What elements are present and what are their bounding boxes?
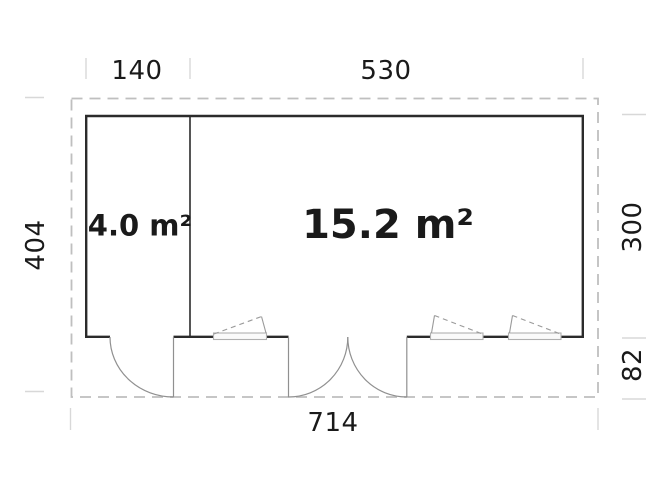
window-frame (509, 333, 562, 340)
window-opening-dashed (435, 316, 483, 335)
window-opening-edge (262, 317, 267, 334)
window-opening-dashed (214, 317, 262, 335)
dim-label-right-upper: 300 (620, 201, 646, 252)
window-opening-dashed (513, 316, 561, 335)
room-area-label-small: 4.0 m² (88, 212, 192, 241)
window-frame (431, 333, 484, 340)
double-door-main-room (289, 337, 407, 397)
window-frame (214, 333, 267, 340)
dim-label-bottom: 714 (307, 410, 358, 436)
door-swing-arc (110, 337, 174, 397)
dim-label-top-left: 140 (111, 58, 162, 84)
dim-label-left: 404 (23, 219, 49, 270)
window-opening-edge (432, 316, 435, 334)
window-3 (509, 316, 562, 340)
dim-label-top-right: 530 (360, 58, 411, 84)
window-2 (431, 316, 484, 340)
room-area-label-large: 15.2 m² (302, 205, 474, 245)
window-1 (214, 317, 267, 340)
door-swing-arc-right (348, 337, 407, 397)
door-small-room (110, 337, 174, 397)
window-opening-edge (510, 316, 513, 334)
door-swing-arc-left (289, 337, 348, 397)
floor-plan: 140 530 404 300 82 714 4.0 m² 15.2 m² (0, 0, 667, 500)
dim-label-right-lower: 82 (620, 348, 646, 382)
